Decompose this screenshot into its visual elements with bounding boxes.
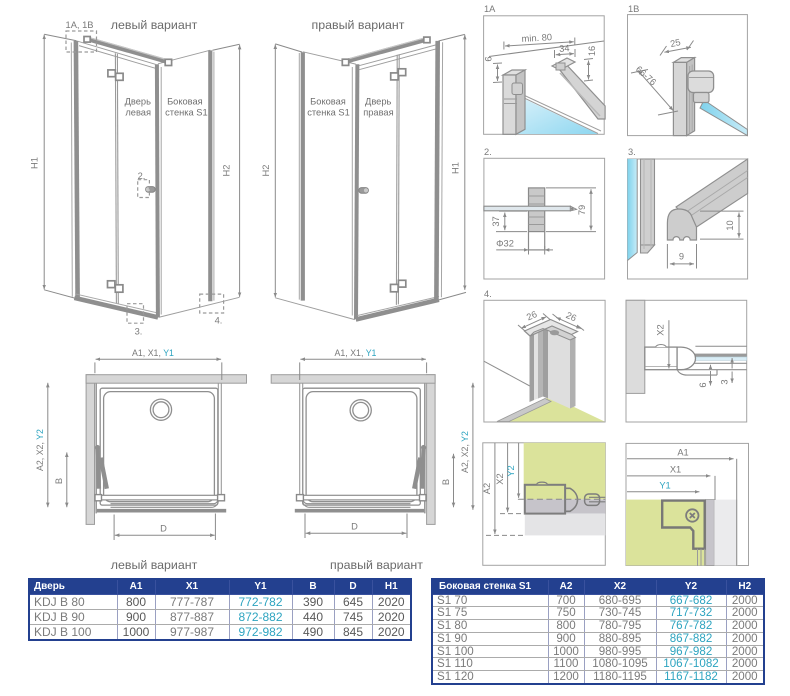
svg-text:Y2: Y2 (506, 465, 516, 476)
svg-text:B: B (54, 478, 64, 484)
svg-text:25: 25 (669, 37, 681, 49)
svg-text:2.: 2. (484, 147, 492, 157)
svg-text:Боковая: Боковая (310, 96, 346, 106)
svg-text:34: 34 (559, 43, 570, 54)
svg-text:9: 9 (679, 252, 684, 262)
svg-text:H1: H1 (451, 162, 461, 174)
svg-text:H1: H1 (30, 157, 40, 169)
svg-text:3.: 3. (628, 147, 636, 157)
svg-text:1A: 1A (484, 4, 496, 14)
svg-text:16: 16 (587, 46, 597, 56)
svg-text:A2: A2 (482, 483, 492, 494)
svg-text:A2, X2, Y2: A2, X2, Y2 (35, 429, 45, 471)
svg-text:левый вариант: левый вариант (111, 18, 198, 32)
svg-text:6: 6 (698, 382, 708, 387)
svg-text:стенка S1: стенка S1 (307, 107, 350, 117)
svg-text:Дверь: Дверь (125, 96, 151, 106)
svg-text:Боковая: Боковая (167, 96, 203, 106)
svg-text:H2: H2 (261, 165, 271, 177)
svg-text:X2: X2 (656, 324, 666, 335)
svg-text:A1, X1, Y1: A1, X1, Y1 (132, 348, 174, 358)
svg-text:Y1: Y1 (659, 480, 670, 490)
svg-text:2.: 2. (138, 171, 146, 181)
svg-text:3: 3 (720, 379, 730, 384)
svg-text:A1, X1, Y1: A1, X1, Y1 (335, 348, 377, 358)
svg-text:Дверь: Дверь (365, 96, 391, 106)
svg-text:10: 10 (725, 220, 735, 230)
svg-text:левая: левая (125, 107, 151, 117)
svg-text:3.: 3. (135, 327, 143, 337)
svg-text:Φ32: Φ32 (496, 239, 514, 249)
svg-text:A2, X2, Y2: A2, X2, Y2 (460, 431, 470, 473)
svg-text:79: 79 (577, 205, 587, 215)
svg-text:37: 37 (491, 216, 501, 226)
svg-text:D: D (160, 524, 167, 534)
svg-text:1A, 1B: 1A, 1B (66, 20, 94, 30)
svg-text:H2: H2 (222, 165, 232, 177)
svg-text:min. 80: min. 80 (521, 32, 552, 44)
svg-text:4.: 4. (484, 289, 492, 299)
svg-text:правый вариант: правый вариант (312, 18, 405, 32)
svg-text:правый вариант: правый вариант (330, 558, 423, 572)
svg-text:D: D (351, 522, 358, 532)
svg-text:4.: 4. (215, 316, 223, 326)
svg-text:X2: X2 (495, 473, 505, 484)
svg-text:левый вариант: левый вариант (111, 558, 198, 572)
svg-text:стенка S1: стенка S1 (165, 107, 208, 117)
svg-text:правая: правая (363, 107, 393, 117)
svg-text:6: 6 (484, 56, 494, 61)
svg-text:A1: A1 (677, 447, 688, 457)
svg-text:X1: X1 (670, 465, 681, 475)
svg-text:B: B (441, 479, 451, 485)
svg-text:1B: 1B (628, 4, 639, 14)
